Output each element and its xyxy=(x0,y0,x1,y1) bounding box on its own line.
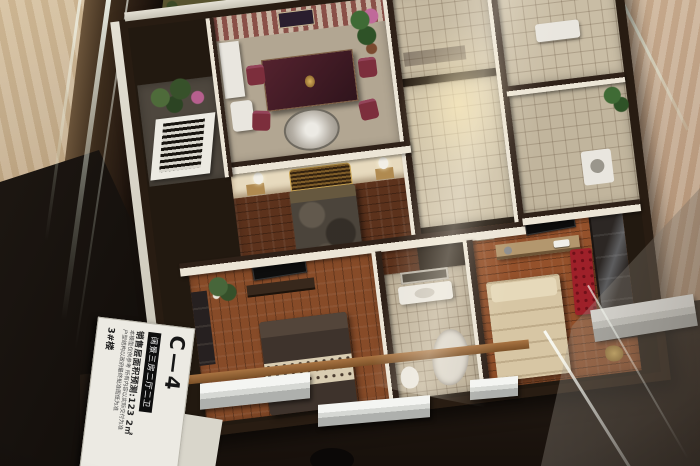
balcony xyxy=(137,76,227,187)
dining-table xyxy=(261,49,359,112)
room-dining xyxy=(211,0,400,165)
balcony-sill xyxy=(470,376,518,400)
round-mirror-rug xyxy=(281,105,342,154)
toilet xyxy=(399,365,420,389)
dining-chair xyxy=(252,110,270,130)
room-kitchen xyxy=(388,0,496,80)
dining-chair xyxy=(358,98,380,122)
washer xyxy=(581,148,615,185)
photo-frame: C—4 阔景三房二厅二卫 销售层面积预测:123 2㎡ 本模型仅供参考 所有内容… xyxy=(0,0,700,466)
bed-pillows xyxy=(259,312,348,339)
vase xyxy=(504,246,513,255)
label-card: C—4 阔景三房二厅二卫 销售层面积预测:123 2㎡ 本模型仅供参考 所有内容… xyxy=(79,317,196,466)
table-centerpiece xyxy=(304,75,315,88)
dining-cabinet xyxy=(219,41,246,99)
toy-car xyxy=(553,239,570,248)
dining-chair xyxy=(246,64,266,86)
sink-basin xyxy=(414,287,435,299)
kitchen-counter xyxy=(403,45,466,66)
nightstand xyxy=(246,183,265,196)
console-table xyxy=(495,235,580,260)
ac-unit xyxy=(150,112,215,180)
potted-plant xyxy=(347,1,385,58)
console-table xyxy=(246,277,315,297)
ac-grille xyxy=(159,118,205,172)
washer-door xyxy=(590,158,606,174)
potted-plant xyxy=(600,80,630,117)
room-utility xyxy=(507,80,640,216)
vanity-sink xyxy=(398,281,454,305)
bath-sink xyxy=(535,19,581,42)
bed-cream xyxy=(486,273,572,381)
white-flower-plant xyxy=(205,271,239,308)
dining-chair xyxy=(357,56,377,78)
base-shadow-spot xyxy=(310,448,354,466)
bed-pillows xyxy=(490,277,558,303)
